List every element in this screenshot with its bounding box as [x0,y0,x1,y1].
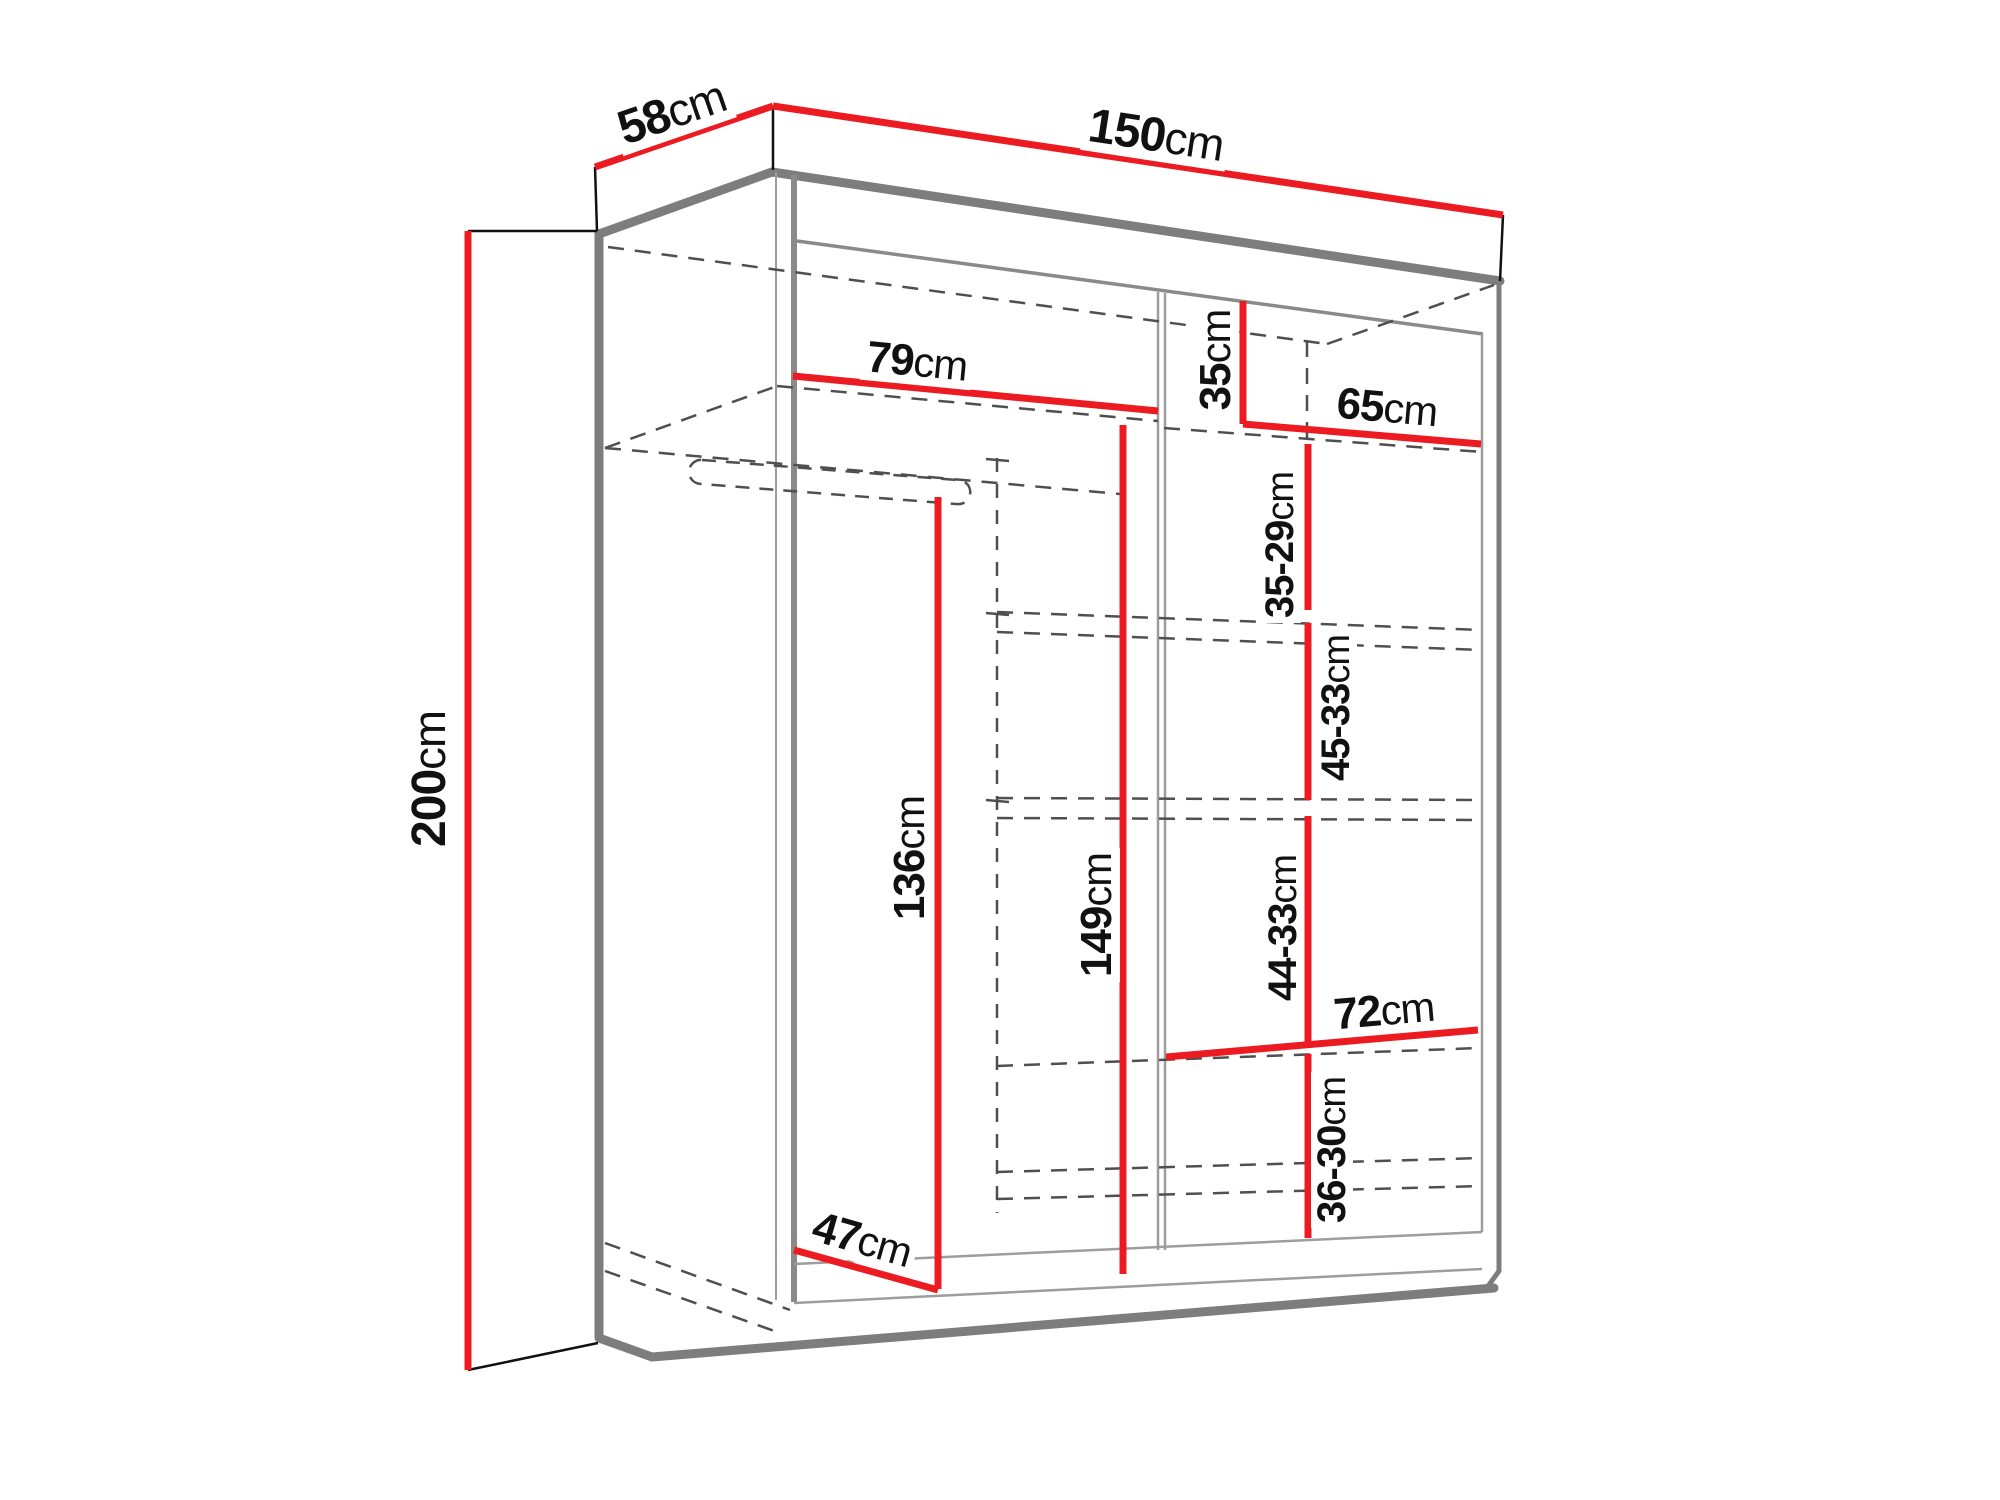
dim-value: 45-33 [1314,684,1358,781]
left-shelf-back-dashed [605,448,1120,494]
dim-value: 150 [1085,99,1169,163]
dim-unit: cm [1382,384,1440,436]
dim-value: 36-30 [1310,1126,1354,1223]
dim-label-height-136: 136cm [887,791,933,925]
dim-unit: cm [911,338,969,390]
dim-label-shelf-79: 79cm [860,334,975,390]
dim-value: 200 [403,770,456,847]
dim-label-vert-35: 35cm [1193,305,1239,416]
dim-label-gap-44-33: 44-33cm [1262,850,1304,1006]
dim-unit: cm [1312,1077,1354,1126]
mid-shelf-front-dashed [997,612,1482,630]
dim-label-height-200: 200cm [405,706,455,852]
outline-bottom-shadow [599,1288,1494,1357]
guide-tick-1 [986,459,1009,461]
bottom-shelf-front-dashed [997,1158,1482,1172]
bottom-shelf-back-dashed [997,1186,1482,1199]
dim-value: 65 [1335,379,1386,432]
floor-depth-dashed-1 [605,1243,790,1310]
dim-unit: cm [404,711,455,770]
floor-depth-dashed-2 [605,1271,780,1333]
red-line-shelf-79 [793,376,1158,411]
dim-label-height-149: 149cm [1074,848,1120,982]
hanging-rod-dashed [688,459,971,505]
dim-unit: cm [1073,853,1120,907]
dim-value: 149 [1072,907,1121,977]
dim-value: 44-33 [1261,904,1305,1001]
dim-value: 72 [1332,986,1383,1039]
dim-unit: cm [1192,310,1239,364]
tick-right [1500,215,1503,281]
interior-ceiling-front-edge [797,241,1483,334]
guide-tick-3 [986,800,1009,802]
dim-unit: cm [1260,472,1302,521]
dim-label-shelf-72: 72cm [1327,983,1441,1038]
dim-unit: cm [1316,635,1358,684]
dim-value: 35-29 [1258,521,1302,618]
lower-shelf-back-dashed [997,818,1482,820]
dim-unit: cm [1263,855,1305,904]
dim-unit: cm [1161,112,1227,171]
tick-bottom [468,1343,598,1370]
dim-label-gap-36-30: 36-30cm [1311,1072,1353,1228]
dim-unit: cm [886,796,933,850]
outline-top-left-slope [599,172,772,234]
wardrobe-outline [599,172,1500,1357]
dim-label-gap-45-33: 45-33cm [1315,630,1357,786]
dim-value: 79 [865,332,916,385]
tick-left-step-v [595,167,597,231]
wardrobe-dimension-diagram: 150cm 58cm 200cm 79cm 35cm 65cm 35-29cm … [0,0,2000,1500]
left-shelf-depth-dashed [605,386,777,448]
dim-value: 136 [885,850,934,920]
dim-label-gap-35-29: 35-29cm [1259,467,1301,623]
lower-shelf-front-dashed [997,798,1482,800]
mid-shelf-back-dashed [997,632,1482,650]
dim-label-shelf-65: 65cm [1330,380,1444,435]
outline-cornice-front-top [772,172,1500,281]
dim-unit: cm [1379,983,1437,1035]
wardrobe-wireframe [0,0,2000,1500]
dim-value: 35 [1191,363,1240,410]
